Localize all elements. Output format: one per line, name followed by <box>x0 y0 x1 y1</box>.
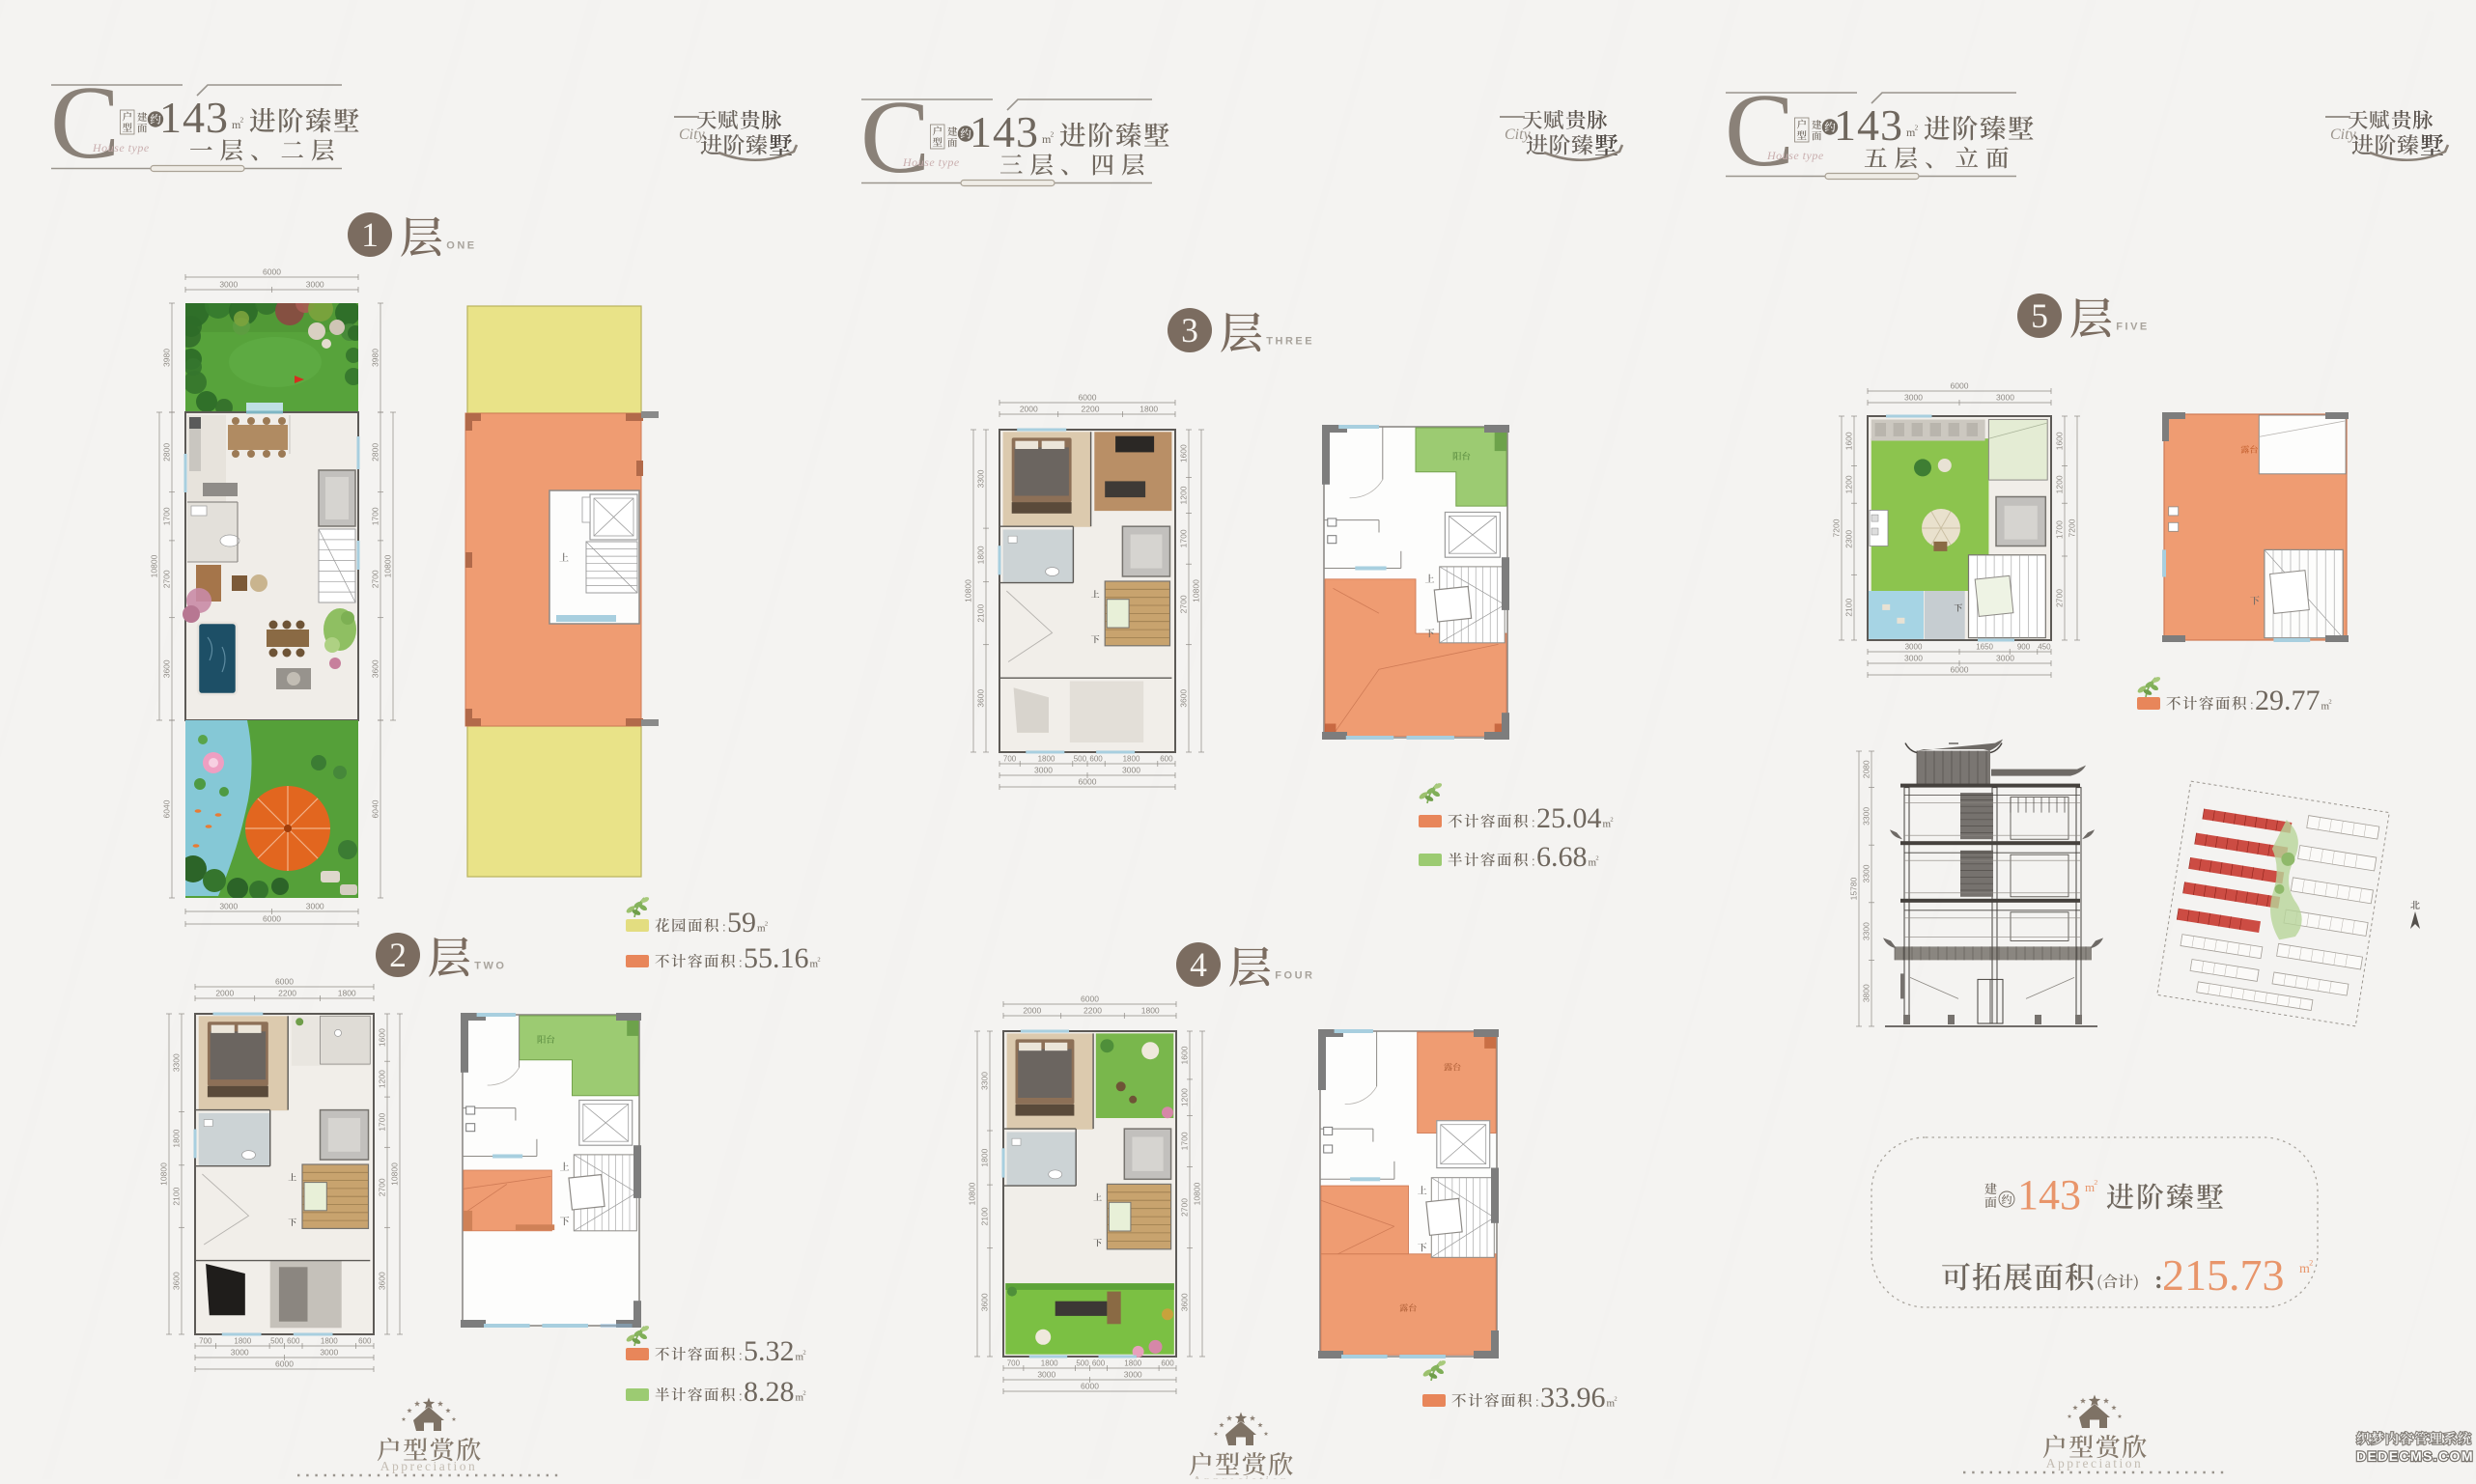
svg-text:2: 2 <box>802 1390 805 1397</box>
svg-text:600: 600 <box>287 1337 300 1346</box>
svg-text:2100: 2100 <box>976 603 986 622</box>
svg-text:C: C <box>860 80 930 195</box>
svg-text:6000: 6000 <box>275 1359 294 1369</box>
svg-text:6000: 6000 <box>1079 393 1097 403</box>
svg-text:2: 2 <box>1051 130 1055 138</box>
svg-text:1200: 1200 <box>1179 486 1189 504</box>
svg-text:6000: 6000 <box>1081 1382 1099 1391</box>
svg-text:2: 2 <box>1915 124 1919 131</box>
svg-text:1700: 1700 <box>1179 529 1189 547</box>
svg-text:1700: 1700 <box>2055 520 2065 539</box>
svg-text:10800: 10800 <box>383 554 393 577</box>
svg-text:6000: 6000 <box>1081 994 1099 1004</box>
svg-text:2700: 2700 <box>162 570 172 588</box>
svg-text:C: C <box>1725 73 1794 188</box>
svg-text:2700: 2700 <box>1180 1198 1190 1217</box>
svg-text::: : <box>2250 698 2254 713</box>
svg-text:2700: 2700 <box>2055 589 2065 607</box>
svg-text:3600: 3600 <box>162 659 172 678</box>
svg-text:2000: 2000 <box>1023 1006 1041 1016</box>
svg-text:3000: 3000 <box>231 1348 249 1358</box>
svg-text:6000: 6000 <box>263 267 281 277</box>
svg-text:2: 2 <box>817 957 820 964</box>
svg-text:1600: 1600 <box>1180 1046 1190 1064</box>
svg-text:6000: 6000 <box>1951 665 1969 675</box>
svg-text:City: City <box>1505 126 1532 143</box>
svg-text:Appreciation: Appreciation <box>1193 1473 1289 1479</box>
svg-text:2: 2 <box>1614 1396 1617 1403</box>
svg-text:1800: 1800 <box>976 546 986 564</box>
svg-text:10800: 10800 <box>968 1182 977 1205</box>
svg-text:3000: 3000 <box>1904 654 1923 663</box>
svg-text:7200: 7200 <box>1832 518 1842 537</box>
svg-text:6.68: 6.68 <box>1536 841 1588 873</box>
svg-text:3: 3 <box>1181 311 1198 350</box>
svg-text:1800: 1800 <box>172 1129 182 1147</box>
svg-text:City: City <box>679 126 706 143</box>
svg-text:City: City <box>2330 126 2357 143</box>
svg-text:700: 700 <box>199 1337 212 1346</box>
svg-text:3980: 3980 <box>371 349 380 367</box>
svg-text:29.77: 29.77 <box>2255 685 2321 716</box>
svg-text:33.96: 33.96 <box>1540 1382 1606 1414</box>
svg-text:2300: 2300 <box>1844 530 1854 548</box>
svg-text:500: 500 <box>1074 755 1087 764</box>
svg-text:3000: 3000 <box>306 902 324 911</box>
svg-text::: : <box>1535 1395 1539 1410</box>
svg-text:3300: 3300 <box>1862 922 1871 940</box>
svg-text:2700: 2700 <box>371 570 380 588</box>
svg-text:25.04: 25.04 <box>1536 802 1602 834</box>
svg-text:6000: 6000 <box>1079 777 1097 787</box>
svg-text:FIVE: FIVE <box>2116 321 2149 332</box>
svg-text:FOUR: FOUR <box>1275 969 1314 981</box>
svg-text:2: 2 <box>2094 1178 2097 1187</box>
svg-text:2700: 2700 <box>378 1178 387 1196</box>
svg-text:2700: 2700 <box>1179 595 1189 613</box>
svg-text:1800: 1800 <box>1124 1359 1141 1368</box>
svg-text:3300: 3300 <box>980 1072 990 1090</box>
svg-text::: : <box>739 956 743 970</box>
svg-text:2200: 2200 <box>1082 405 1100 414</box>
svg-text:2800: 2800 <box>371 443 380 462</box>
svg-text:3000: 3000 <box>1904 393 1923 403</box>
svg-text:3600: 3600 <box>371 659 380 678</box>
svg-text:600: 600 <box>1092 1359 1106 1368</box>
svg-text:1600: 1600 <box>1179 444 1189 462</box>
svg-text:1: 1 <box>361 215 379 254</box>
svg-text:1800: 1800 <box>1041 1359 1058 1368</box>
svg-text:1800: 1800 <box>1141 1006 1160 1016</box>
svg-text:3600: 3600 <box>1180 1293 1190 1311</box>
svg-text:143: 143 <box>1834 100 1903 150</box>
svg-text:2200: 2200 <box>1083 1006 1102 1016</box>
svg-text:2: 2 <box>240 116 244 124</box>
svg-text:6040: 6040 <box>371 799 380 818</box>
svg-text:6040: 6040 <box>162 799 172 818</box>
svg-text:600: 600 <box>1089 755 1103 764</box>
svg-text:Appreciation: Appreciation <box>2046 1456 2143 1470</box>
svg-text:1700: 1700 <box>1180 1132 1190 1150</box>
svg-text::: : <box>722 920 726 935</box>
svg-text:1800: 1800 <box>321 1337 338 1346</box>
svg-text:1800: 1800 <box>1038 755 1055 764</box>
svg-text:600: 600 <box>358 1337 372 1346</box>
svg-text:2: 2 <box>2309 1258 2313 1267</box>
svg-text:1800: 1800 <box>234 1337 251 1346</box>
svg-text:3000: 3000 <box>1122 766 1140 775</box>
svg-text:55.16: 55.16 <box>744 942 809 974</box>
svg-text:2800: 2800 <box>162 443 172 462</box>
svg-text:450: 450 <box>2038 643 2051 652</box>
svg-text:2100: 2100 <box>1844 598 1854 616</box>
svg-text:2000: 2000 <box>215 989 234 998</box>
svg-text:2: 2 <box>765 921 768 928</box>
svg-text:House type: House type <box>92 141 150 154</box>
svg-text:1700: 1700 <box>378 1112 387 1131</box>
svg-text:House type: House type <box>1766 149 1824 162</box>
svg-text:3000: 3000 <box>1124 1370 1142 1380</box>
svg-text:6000: 6000 <box>275 977 294 987</box>
svg-text:Appreciation: Appreciation <box>380 1459 477 1473</box>
svg-text:1800: 1800 <box>338 989 356 998</box>
svg-text:3000: 3000 <box>1037 1370 1055 1380</box>
svg-text:10800: 10800 <box>964 579 973 602</box>
svg-text:2100: 2100 <box>172 1187 182 1205</box>
svg-text:1700: 1700 <box>162 507 172 525</box>
svg-text:3600: 3600 <box>378 1272 387 1290</box>
svg-text:3000: 3000 <box>320 1348 338 1358</box>
svg-text:2: 2 <box>1610 817 1613 824</box>
svg-text:3000: 3000 <box>219 280 238 290</box>
svg-text:10800: 10800 <box>159 1162 169 1186</box>
svg-text:215.73: 215.73 <box>2162 1250 2285 1300</box>
svg-text:500: 500 <box>1076 1359 1089 1368</box>
svg-text:3600: 3600 <box>1179 689 1189 708</box>
svg-text:2100: 2100 <box>980 1207 990 1225</box>
svg-text:700: 700 <box>1007 1359 1021 1368</box>
svg-text:1650: 1650 <box>1976 643 1993 652</box>
svg-text:3600: 3600 <box>172 1272 182 1290</box>
svg-text:3000: 3000 <box>306 280 324 290</box>
svg-text:143: 143 <box>970 107 1039 156</box>
svg-text:3300: 3300 <box>976 469 986 488</box>
svg-text:3300: 3300 <box>172 1053 182 1072</box>
svg-text:TWO: TWO <box>474 960 506 971</box>
svg-text:10800: 10800 <box>1193 1182 1202 1205</box>
svg-text:2000: 2000 <box>1020 405 1038 414</box>
svg-text:700: 700 <box>1003 755 1017 764</box>
svg-text:3000: 3000 <box>1996 654 2014 663</box>
svg-text:1800: 1800 <box>1140 405 1158 414</box>
svg-text:600: 600 <box>1161 1359 1174 1368</box>
svg-text:3000: 3000 <box>219 902 238 911</box>
svg-text:10800: 10800 <box>390 1162 400 1186</box>
svg-text:7200: 7200 <box>2068 518 2077 537</box>
svg-text::: : <box>1532 854 1535 869</box>
svg-text::: : <box>1532 816 1535 830</box>
svg-text:500: 500 <box>270 1337 284 1346</box>
svg-text:8.28: 8.28 <box>744 1376 795 1408</box>
svg-text:C: C <box>50 66 120 181</box>
svg-text:59: 59 <box>727 907 756 938</box>
svg-text:1200: 1200 <box>1180 1088 1190 1106</box>
svg-text:15780: 15780 <box>1849 877 1859 900</box>
svg-text:5.32: 5.32 <box>744 1335 795 1367</box>
svg-text:House type: House type <box>902 155 960 169</box>
svg-text:3980: 3980 <box>162 349 172 367</box>
svg-text:1600: 1600 <box>378 1028 387 1047</box>
svg-text:3300: 3300 <box>1862 807 1871 826</box>
svg-text:3000: 3000 <box>1905 643 1923 652</box>
svg-text:10800: 10800 <box>1192 579 1201 602</box>
svg-text:1600: 1600 <box>1844 432 1854 450</box>
svg-text:10800: 10800 <box>150 554 159 577</box>
svg-text:3600: 3600 <box>980 1293 990 1311</box>
svg-text:1600: 1600 <box>2055 432 2065 450</box>
svg-text::: : <box>739 1389 743 1404</box>
svg-text:6000: 6000 <box>1951 381 1969 391</box>
svg-text:2: 2 <box>802 1350 805 1357</box>
svg-text:1800: 1800 <box>980 1148 990 1166</box>
svg-text:5: 5 <box>2031 296 2048 335</box>
svg-text:3600: 3600 <box>976 689 986 708</box>
svg-text:2080: 2080 <box>1862 760 1871 778</box>
svg-text:1800: 1800 <box>1123 755 1140 764</box>
svg-text:900: 900 <box>2017 643 2031 652</box>
svg-text:3800: 3800 <box>1862 984 1871 1002</box>
svg-text:143: 143 <box>159 93 229 142</box>
svg-text:2: 2 <box>389 936 407 974</box>
svg-text::: : <box>739 1349 743 1363</box>
svg-text:1700: 1700 <box>371 507 380 525</box>
svg-text:6000: 6000 <box>263 914 281 924</box>
svg-text:1200: 1200 <box>1844 475 1854 493</box>
svg-text:ONE: ONE <box>446 239 476 251</box>
svg-text:3000: 3000 <box>1034 766 1053 775</box>
svg-text:143: 143 <box>2017 1171 2081 1218</box>
svg-text:3300: 3300 <box>1862 864 1871 882</box>
svg-text:600: 600 <box>1160 755 1173 764</box>
svg-text:3000: 3000 <box>1996 393 2014 403</box>
svg-text:2: 2 <box>2328 699 2331 706</box>
svg-text:4: 4 <box>1190 945 1207 984</box>
svg-text:2: 2 <box>1595 855 1598 862</box>
svg-text:THREE: THREE <box>1266 335 1314 347</box>
svg-text:1200: 1200 <box>2055 475 2065 493</box>
svg-text:1200: 1200 <box>378 1070 387 1088</box>
svg-text:2200: 2200 <box>278 989 296 998</box>
svg-text:DEDECMS.COM: DEDECMS.COM <box>2356 1448 2474 1464</box>
